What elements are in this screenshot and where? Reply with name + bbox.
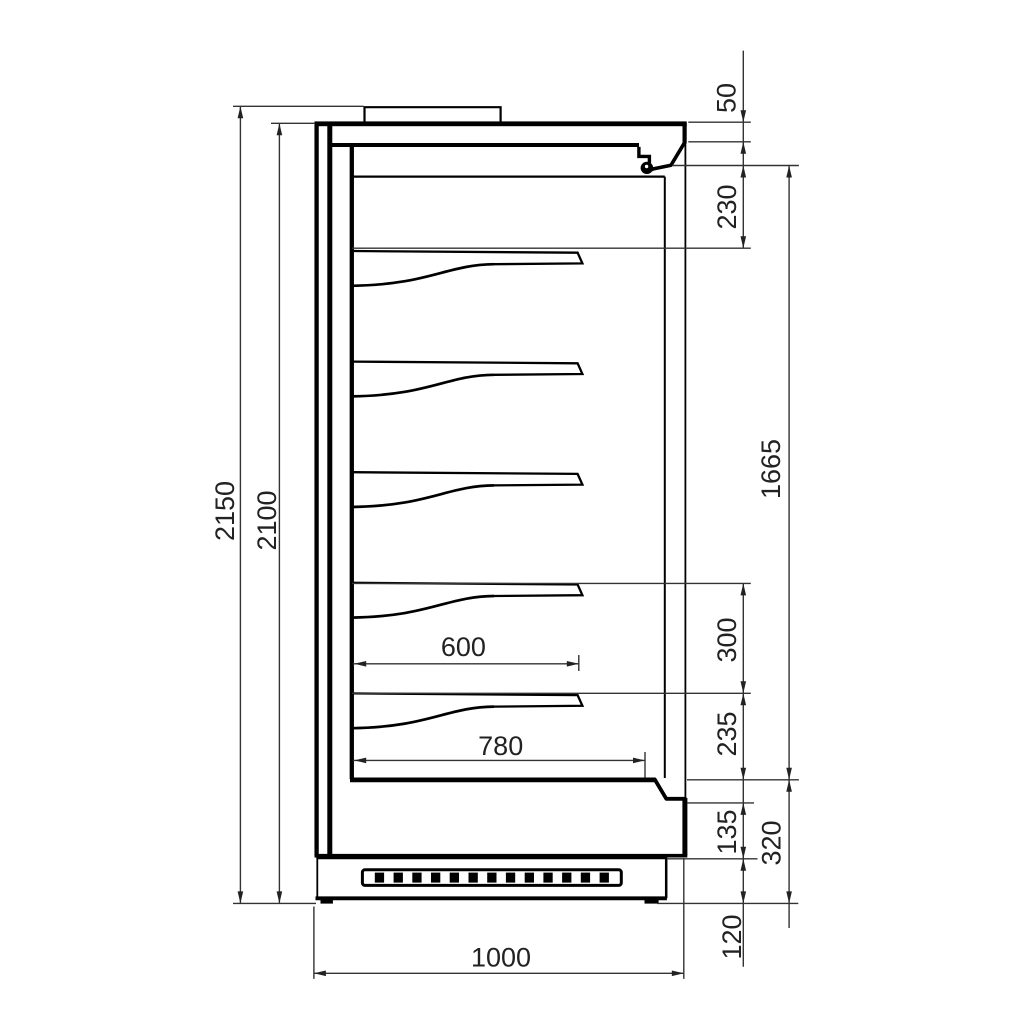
svg-text:120: 120 [717, 914, 747, 959]
svg-text:2100: 2100 [252, 490, 282, 550]
svg-text:320: 320 [757, 820, 787, 865]
svg-text:300: 300 [712, 617, 742, 662]
svg-text:1665: 1665 [756, 439, 786, 499]
svg-text:50: 50 [712, 83, 742, 113]
svg-text:135: 135 [712, 809, 742, 854]
svg-text:600: 600 [441, 632, 486, 662]
svg-text:1000: 1000 [471, 942, 531, 972]
svg-text:230: 230 [712, 184, 742, 229]
svg-text:235: 235 [712, 711, 742, 756]
svg-text:2150: 2150 [210, 481, 240, 541]
svg-text:780: 780 [478, 731, 523, 761]
